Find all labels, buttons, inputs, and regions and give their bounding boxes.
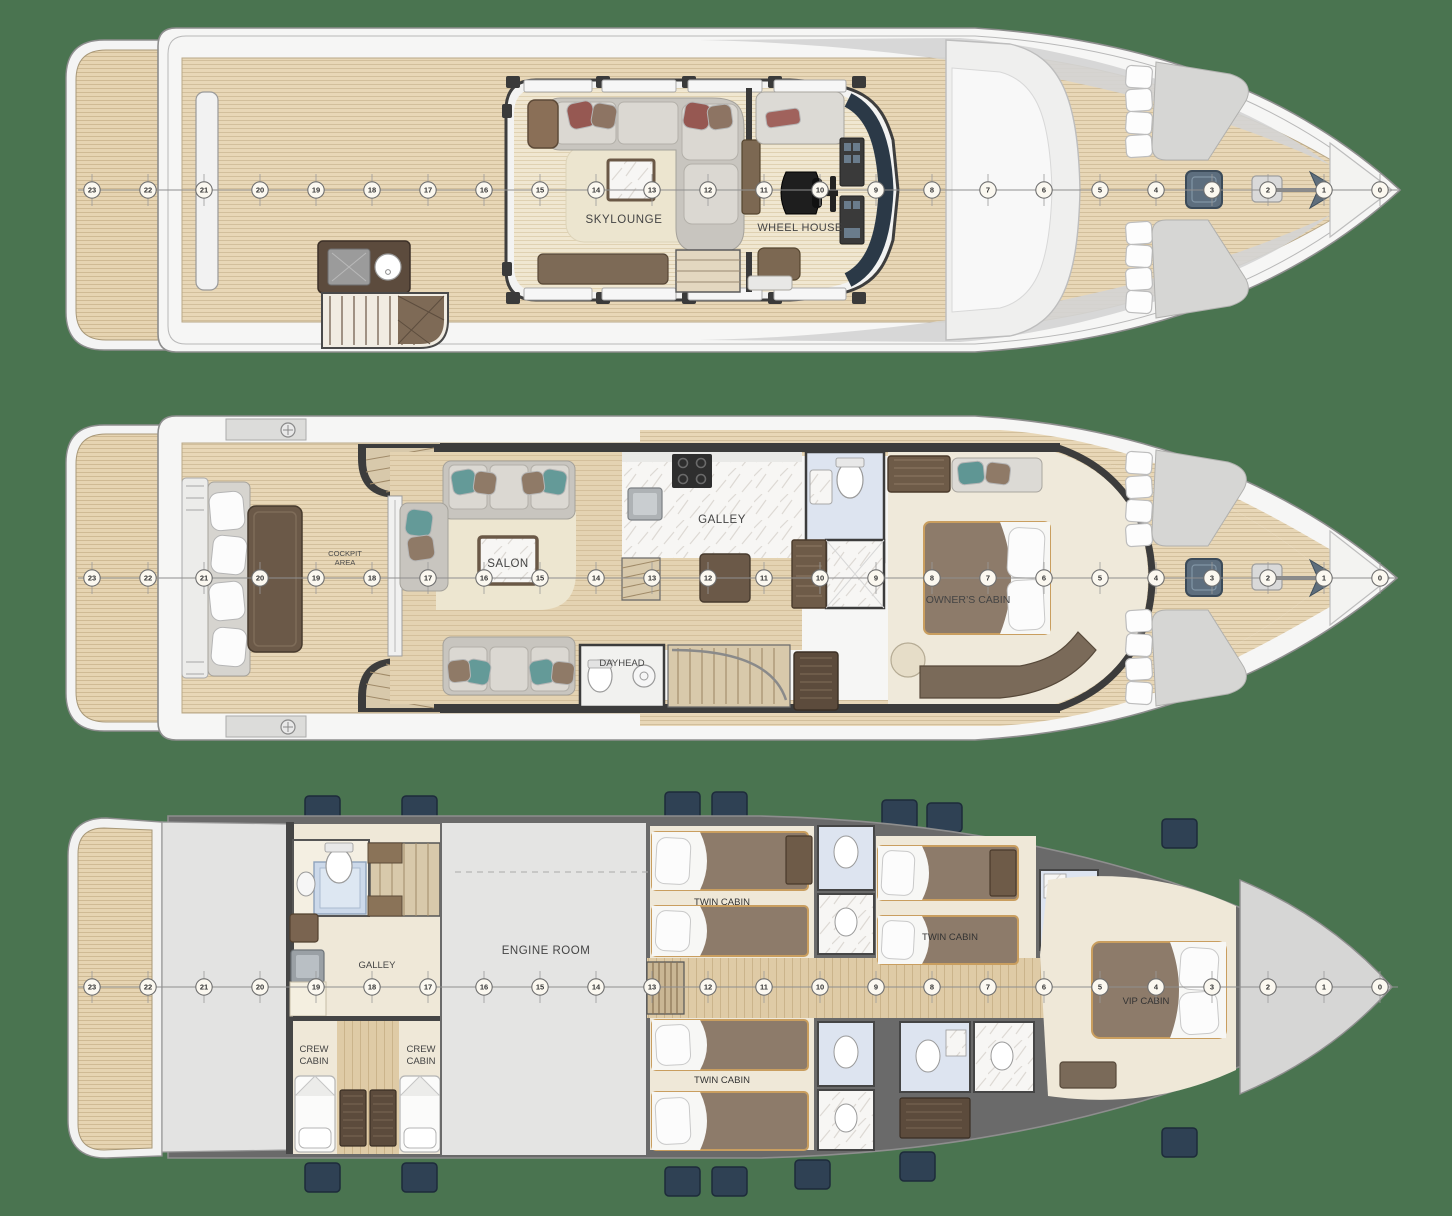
svg-text:16: 16 bbox=[480, 186, 488, 195]
svg-text:23: 23 bbox=[88, 186, 96, 195]
svg-text:TWIN CABIN: TWIN CABIN bbox=[694, 1075, 750, 1086]
svg-text:13: 13 bbox=[648, 186, 656, 195]
svg-text:16: 16 bbox=[480, 983, 488, 992]
svg-text:0: 0 bbox=[1378, 983, 1382, 992]
svg-text:CABIN: CABIN bbox=[299, 1056, 328, 1067]
svg-text:1: 1 bbox=[1322, 186, 1326, 195]
svg-text:7: 7 bbox=[986, 186, 990, 195]
svg-text:9: 9 bbox=[874, 574, 878, 583]
svg-text:5: 5 bbox=[1098, 983, 1102, 992]
svg-text:3: 3 bbox=[1210, 186, 1214, 195]
svg-text:19: 19 bbox=[312, 983, 320, 992]
svg-text:23: 23 bbox=[88, 574, 96, 583]
svg-text:15: 15 bbox=[536, 574, 544, 583]
svg-text:17: 17 bbox=[424, 983, 432, 992]
svg-text:DAYHEAD: DAYHEAD bbox=[599, 658, 644, 669]
svg-text:17: 17 bbox=[424, 186, 432, 195]
svg-text:22: 22 bbox=[144, 983, 152, 992]
svg-text:14: 14 bbox=[592, 574, 601, 583]
svg-text:12: 12 bbox=[704, 574, 712, 583]
svg-text:21: 21 bbox=[200, 186, 208, 195]
svg-text:AREA: AREA bbox=[335, 558, 357, 567]
svg-text:1: 1 bbox=[1322, 574, 1326, 583]
svg-text:22: 22 bbox=[144, 186, 152, 195]
svg-text:14: 14 bbox=[592, 186, 601, 195]
svg-text:6: 6 bbox=[1042, 186, 1046, 195]
svg-text:OWNER’S CABIN: OWNER’S CABIN bbox=[926, 594, 1011, 606]
svg-text:6: 6 bbox=[1042, 983, 1046, 992]
svg-text:9: 9 bbox=[874, 983, 878, 992]
svg-text:8: 8 bbox=[930, 983, 934, 992]
svg-text:9: 9 bbox=[874, 186, 878, 195]
svg-text:13: 13 bbox=[648, 574, 656, 583]
svg-text:13: 13 bbox=[648, 983, 656, 992]
svg-text:12: 12 bbox=[704, 186, 712, 195]
svg-text:COCKPIT: COCKPIT bbox=[328, 549, 362, 558]
svg-text:16: 16 bbox=[480, 574, 488, 583]
svg-text:11: 11 bbox=[760, 574, 768, 583]
svg-text:19: 19 bbox=[312, 186, 320, 195]
svg-text:TWIN CABIN: TWIN CABIN bbox=[922, 932, 978, 943]
svg-text:20: 20 bbox=[256, 186, 264, 195]
svg-text:14: 14 bbox=[592, 983, 601, 992]
svg-text:5: 5 bbox=[1098, 186, 1102, 195]
svg-text:TWIN CABIN: TWIN CABIN bbox=[694, 897, 750, 908]
svg-text:3: 3 bbox=[1210, 983, 1214, 992]
svg-text:10: 10 bbox=[816, 983, 824, 992]
svg-text:7: 7 bbox=[986, 574, 990, 583]
svg-text:12: 12 bbox=[704, 983, 712, 992]
svg-text:11: 11 bbox=[760, 186, 768, 195]
svg-text:SKYLOUNGE: SKYLOUNGE bbox=[586, 214, 663, 226]
svg-text:8: 8 bbox=[930, 574, 934, 583]
svg-text:20: 20 bbox=[256, 574, 264, 583]
svg-text:11: 11 bbox=[760, 983, 768, 992]
svg-text:1: 1 bbox=[1322, 983, 1326, 992]
svg-text:WHEEL HOUSE: WHEEL HOUSE bbox=[757, 222, 842, 234]
svg-text:18: 18 bbox=[368, 186, 376, 195]
svg-text:CREW: CREW bbox=[299, 1044, 328, 1055]
svg-text:2: 2 bbox=[1266, 574, 1270, 583]
svg-text:2: 2 bbox=[1266, 186, 1270, 195]
svg-text:GALLEY: GALLEY bbox=[359, 960, 397, 971]
svg-text:23: 23 bbox=[88, 983, 96, 992]
svg-text:6: 6 bbox=[1042, 574, 1046, 583]
svg-text:5: 5 bbox=[1098, 574, 1102, 583]
svg-text:15: 15 bbox=[536, 186, 544, 195]
svg-text:21: 21 bbox=[200, 983, 208, 992]
svg-text:21: 21 bbox=[200, 574, 208, 583]
svg-text:CABIN: CABIN bbox=[406, 1056, 435, 1067]
svg-text:0: 0 bbox=[1378, 186, 1382, 195]
svg-text:VIP CABIN: VIP CABIN bbox=[1123, 996, 1170, 1007]
svg-text:15: 15 bbox=[536, 983, 544, 992]
svg-text:8: 8 bbox=[930, 186, 934, 195]
svg-text:19: 19 bbox=[312, 574, 320, 583]
svg-text:0: 0 bbox=[1378, 574, 1382, 583]
svg-text:20: 20 bbox=[256, 983, 264, 992]
svg-text:GALLEY: GALLEY bbox=[698, 514, 746, 526]
svg-text:18: 18 bbox=[368, 574, 376, 583]
svg-text:10: 10 bbox=[816, 574, 824, 583]
svg-text:CREW: CREW bbox=[406, 1044, 435, 1055]
svg-text:17: 17 bbox=[424, 574, 432, 583]
svg-text:SALON: SALON bbox=[487, 558, 529, 570]
svg-text:7: 7 bbox=[986, 983, 990, 992]
svg-text:3: 3 bbox=[1210, 574, 1214, 583]
svg-text:22: 22 bbox=[144, 574, 152, 583]
svg-text:2: 2 bbox=[1266, 983, 1270, 992]
svg-text:10: 10 bbox=[816, 186, 824, 195]
svg-text:18: 18 bbox=[368, 983, 376, 992]
svg-text:ENGINE ROOM: ENGINE ROOM bbox=[502, 945, 591, 957]
